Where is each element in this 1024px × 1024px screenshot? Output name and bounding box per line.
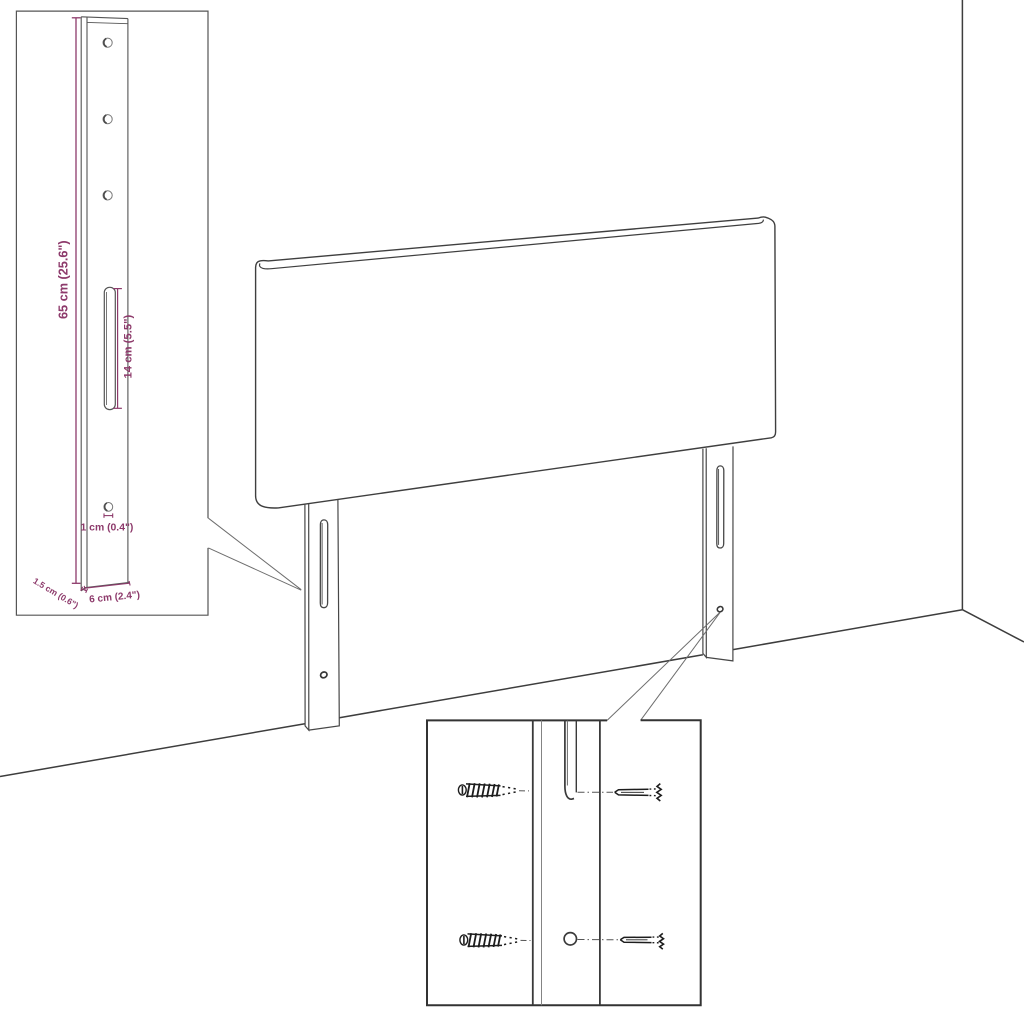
svg-text:14 cm (5.5"): 14 cm (5.5"): [123, 315, 135, 379]
svg-text:6 cm (2.4"): 6 cm (2.4"): [89, 590, 141, 606]
svg-text:65 cm (25.6"): 65 cm (25.6"): [57, 240, 71, 319]
svg-text:1.5 cm (0.6"): 1.5 cm (0.6"): [31, 576, 80, 611]
svg-text:1 cm (0.4"): 1 cm (0.4"): [81, 523, 134, 534]
